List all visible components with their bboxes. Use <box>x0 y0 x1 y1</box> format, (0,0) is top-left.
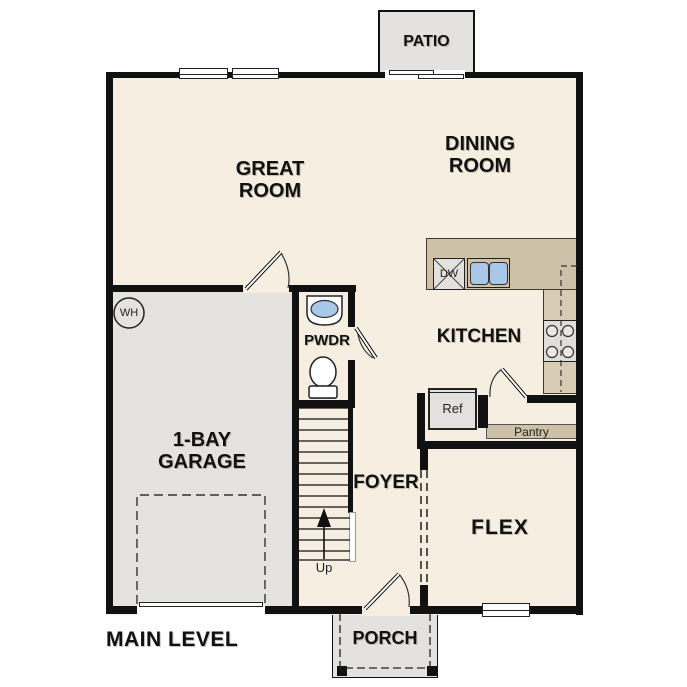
wall-flex-top <box>417 441 583 449</box>
wall-flex-left-stub-top <box>420 449 428 470</box>
powder-label: PWDR <box>297 333 357 349</box>
garage-label: 1-BAYGARAGE <box>132 430 272 473</box>
window-great-room-2 <box>232 68 279 79</box>
sink-basin-left <box>470 262 489 285</box>
wall-garage-top <box>106 285 356 292</box>
dishwasher-label: DW <box>434 268 464 280</box>
porch-post-left <box>337 666 347 676</box>
wall-powder-right-upper <box>348 285 355 327</box>
wall-top <box>106 72 583 78</box>
wall-right <box>576 72 583 615</box>
wall-left <box>106 72 113 611</box>
floor-plan: GREATROOM DININGROOM KITCHEN PWDR FOYER … <box>0 0 687 687</box>
window-great-room-1 <box>179 68 228 79</box>
opening-porch-door <box>362 605 410 616</box>
opening-kitchen-door <box>488 394 527 404</box>
great-room-label: GREATROOM <box>200 159 340 202</box>
stairs-up-label: Up <box>306 560 342 575</box>
wall-kitchen-jamb <box>478 395 488 428</box>
patio-label: PATIO <box>378 33 475 50</box>
wall-stairs-right <box>348 408 353 513</box>
pantry-label: Pantry <box>486 425 577 439</box>
wall-powder-bottom <box>292 400 355 408</box>
refrigerator-label: Ref <box>428 401 477 416</box>
wall-ref-left <box>417 393 425 443</box>
porch-post-right <box>427 666 437 676</box>
kitchen-label: KITCHEN <box>409 327 549 348</box>
flex-label: FLEX <box>440 517 560 540</box>
kitchen-sink <box>467 258 510 288</box>
wall-flex-left-stub-bottom <box>420 585 428 608</box>
main-level-title: MAIN LEVEL <box>106 629 306 652</box>
porch-label: PORCH <box>332 629 438 648</box>
sink-basin-right <box>489 262 508 285</box>
stair-landing-opening <box>349 512 356 562</box>
foyer-label: FOYER <box>352 473 420 494</box>
window-flex <box>482 603 530 617</box>
refrigerator-door-line <box>430 392 475 393</box>
opening-garage-door <box>243 284 289 293</box>
water-heater-label: WH <box>114 307 144 319</box>
wall-kitchen-pantry <box>527 395 578 403</box>
garage-bay-door <box>139 602 263 607</box>
dining-room-label: DININGROOM <box>410 134 550 177</box>
patio-slider-panel-2 <box>418 74 464 79</box>
